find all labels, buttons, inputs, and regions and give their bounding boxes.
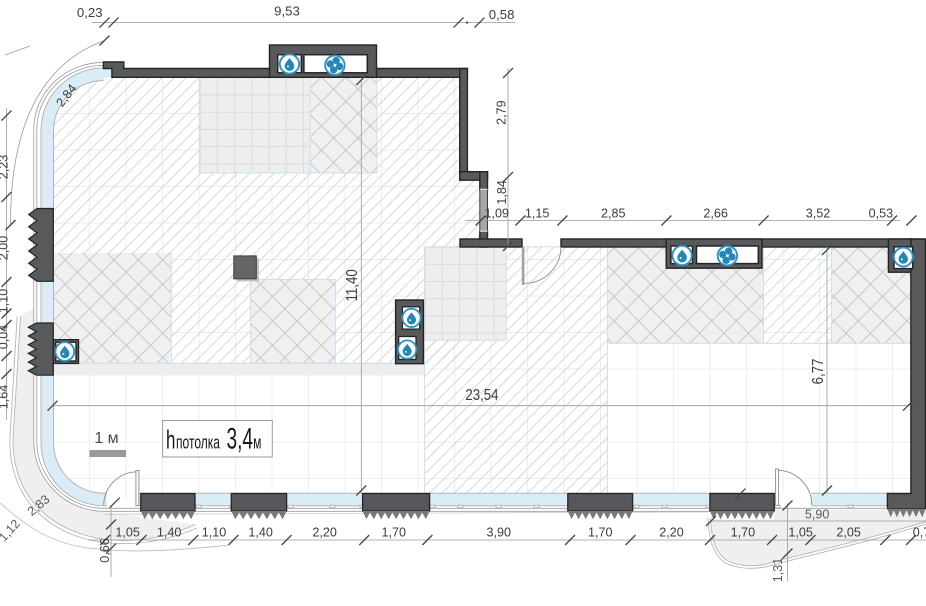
- svg-text:3,52: 3,52: [806, 207, 831, 221]
- svg-text:0,58: 0,58: [489, 7, 515, 22]
- svg-text:2,85: 2,85: [601, 207, 626, 221]
- svg-text:1,70: 1,70: [731, 525, 756, 539]
- svg-text:1,70: 1,70: [381, 525, 406, 539]
- svg-text:1,84: 1,84: [495, 180, 509, 205]
- svg-text:1,70: 1,70: [588, 525, 613, 539]
- svg-text:2,00: 2,00: [0, 236, 10, 261]
- svg-text:5,90: 5,90: [805, 508, 830, 522]
- svg-text:1,09: 1,09: [484, 207, 509, 221]
- svg-text:1 м: 1 м: [94, 430, 118, 447]
- svg-text:11,40: 11,40: [344, 269, 361, 301]
- svg-text:1,40: 1,40: [248, 525, 273, 539]
- svg-text:1,40: 1,40: [157, 525, 182, 539]
- svg-text:2,66: 2,66: [703, 207, 728, 221]
- svg-text:6,77: 6,77: [810, 359, 827, 385]
- svg-text:1,10: 1,10: [0, 289, 10, 314]
- svg-text:1,64: 1,64: [0, 385, 10, 410]
- svg-text:1,10: 1,10: [202, 525, 227, 539]
- svg-text:1,05: 1,05: [115, 525, 140, 539]
- svg-text:2,05: 2,05: [836, 525, 861, 539]
- svg-text:3,90: 3,90: [486, 525, 511, 539]
- svg-text:0,66: 0,66: [98, 538, 112, 563]
- svg-text:1,31: 1,31: [771, 558, 785, 583]
- svg-text:0,53: 0,53: [869, 207, 894, 221]
- svg-text:0,70: 0,70: [913, 525, 926, 539]
- svg-text:0,23: 0,23: [77, 5, 103, 20]
- svg-text:1,15: 1,15: [525, 207, 550, 221]
- svg-text:2,23: 2,23: [0, 155, 10, 180]
- svg-text:23,54: 23,54: [465, 387, 498, 404]
- svg-text:9,53: 9,53: [274, 4, 300, 19]
- svg-text:2,20: 2,20: [659, 525, 684, 539]
- svg-text:1,05: 1,05: [788, 525, 813, 539]
- svg-text:2,20: 2,20: [312, 525, 337, 539]
- svg-text:0,04: 0,04: [0, 325, 10, 350]
- svg-text:2,79: 2,79: [494, 100, 508, 125]
